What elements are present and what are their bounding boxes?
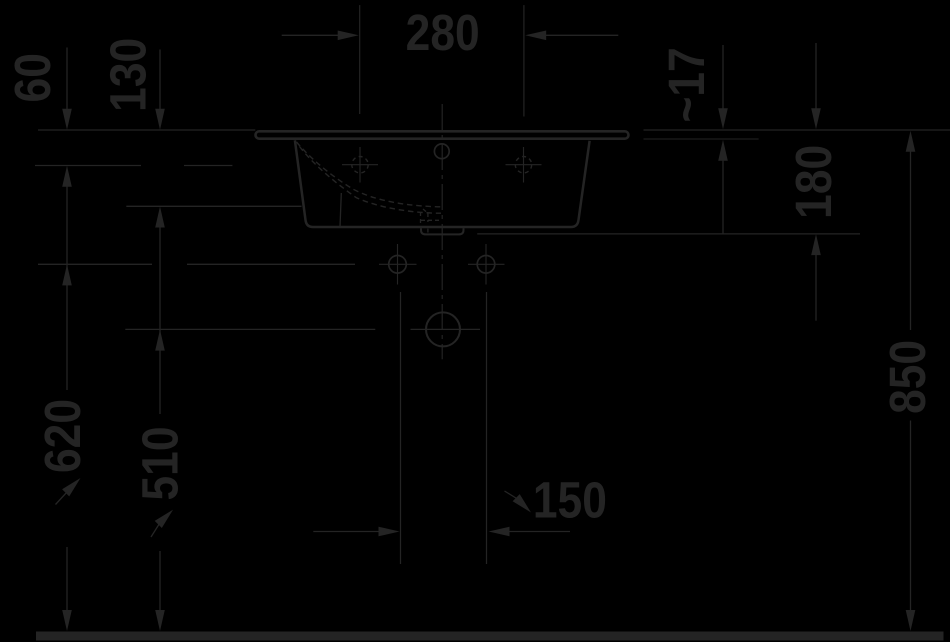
svg-text:620: 620 bbox=[35, 399, 92, 473]
svg-text:150: 150 bbox=[533, 473, 607, 530]
svg-text:280: 280 bbox=[406, 5, 480, 62]
svg-text:850: 850 bbox=[880, 340, 937, 414]
svg-text:510: 510 bbox=[132, 426, 189, 500]
svg-text:180: 180 bbox=[786, 145, 843, 219]
svg-text:~17: ~17 bbox=[659, 47, 716, 122]
svg-text:130: 130 bbox=[101, 38, 158, 112]
svg-text:60: 60 bbox=[5, 53, 62, 102]
